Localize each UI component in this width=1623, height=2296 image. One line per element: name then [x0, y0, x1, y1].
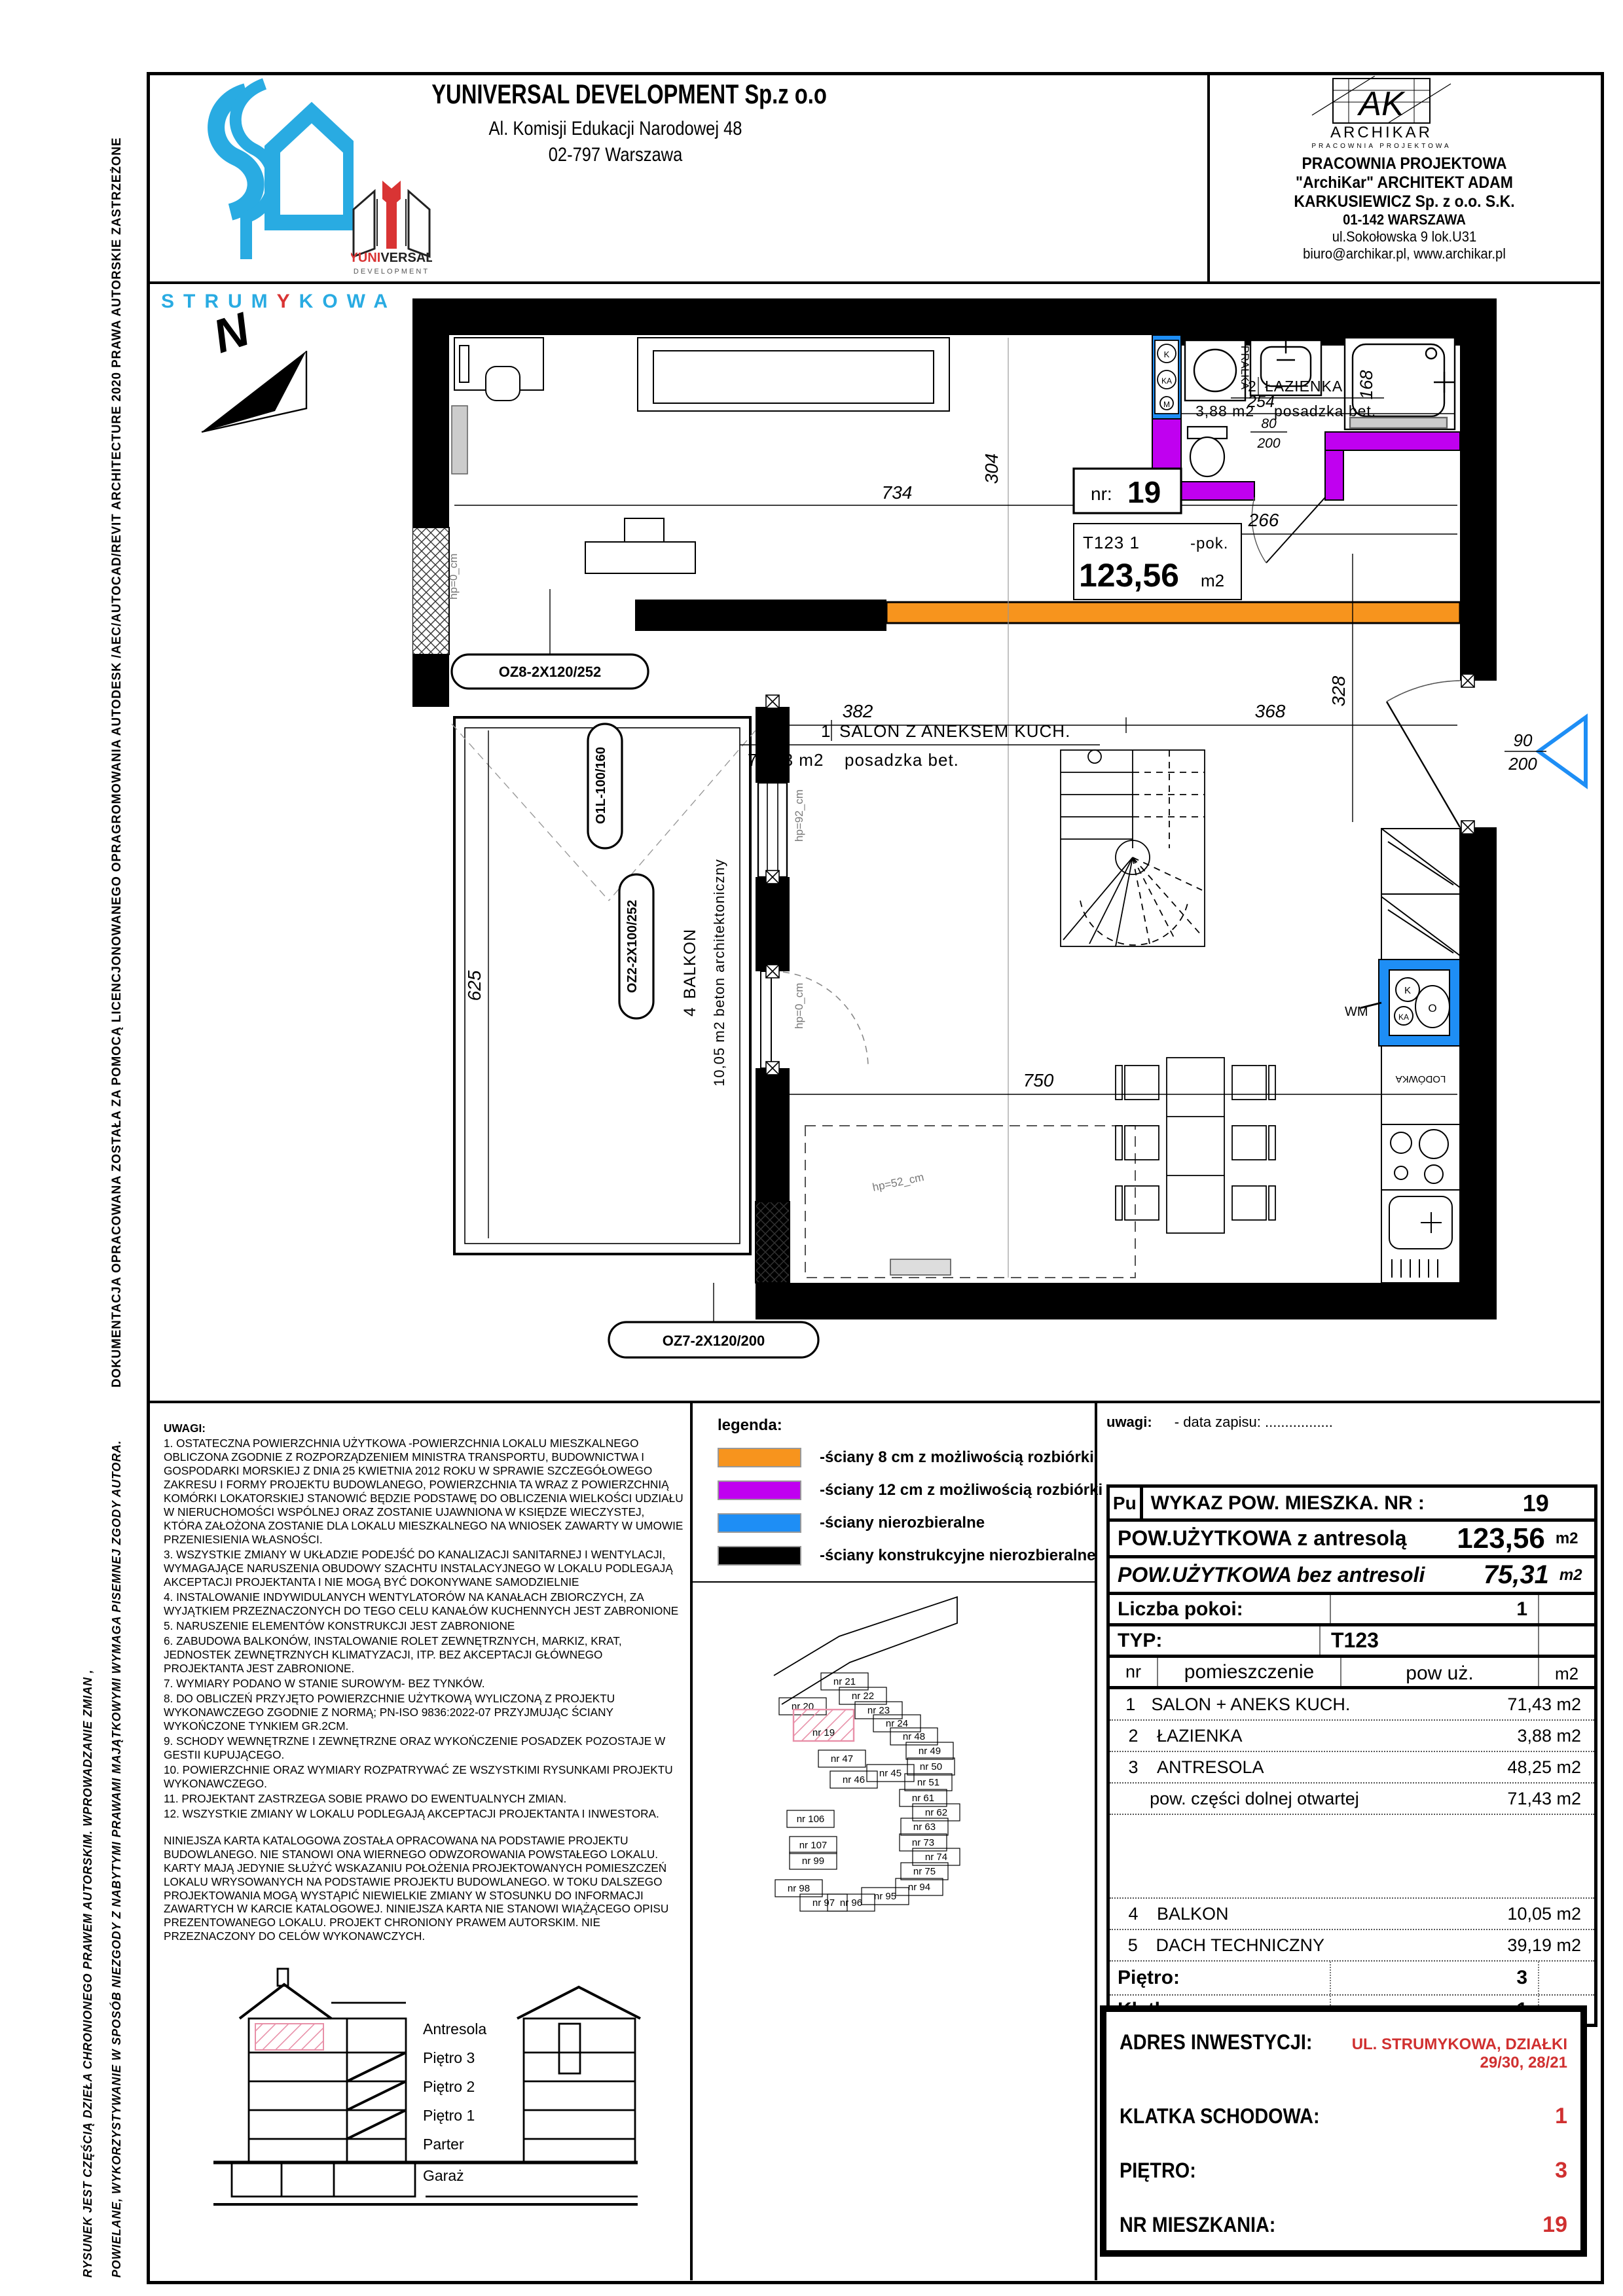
keyplan-unit-label: nr 73	[912, 1837, 934, 1848]
lodowka-label: LODÓWKA	[1396, 1073, 1446, 1085]
room-row: 2ŁAZIENKA3,88 m2	[1110, 1721, 1594, 1752]
legend-item: -ściany 8 cm z możliwością rozbiórki	[718, 1448, 1084, 1467]
window-label-oz8: OZ8-2X120/252	[499, 664, 602, 680]
balcony-no: 4	[681, 1007, 699, 1016]
room-rows: 1SALON + ANEKS KUCH.71,43 m22ŁAZIENKA3,8…	[1110, 1689, 1594, 1962]
shaft2-k: K	[1404, 985, 1411, 996]
cell-pu: Pu	[1110, 1488, 1143, 1518]
keyplan-unit-label: nr 19	[812, 1727, 835, 1738]
keyplan-unit: nr 94	[896, 1878, 943, 1895]
uwagi-note: 1. OSTATECZNA POWIERZCHNIA UŻYTKOWA -POW…	[164, 1437, 685, 1547]
svg-text:4BALKON: 4BALKON	[681, 929, 699, 1016]
room-row: pow. części dolnej otwartej71,43 m2	[1110, 1784, 1594, 1815]
room-area: 10,05 m2	[1319, 1904, 1594, 1924]
balcony-area: 10,05 m2 beton architektoniczny	[711, 859, 727, 1086]
section-highlight	[255, 2024, 323, 2050]
uwagi-note: 11. PROJEKTANT ZASTRZEGA SOBIE PRAWO DO …	[164, 1792, 685, 1806]
dim-750: 750	[1023, 1070, 1054, 1090]
room-nr: 5	[1110, 1935, 1156, 1956]
logo-y-stem	[386, 202, 397, 249]
legend-item: -ściany nierozbieralne	[718, 1513, 1084, 1533]
adres-value: UL. STRUMYKOWA, DZIAŁKI 29/30, 28/21	[1334, 2036, 1567, 2072]
room-area: 48,25 m2	[1319, 1757, 1594, 1778]
uwagi-block: UWAGI: 1. OSTATECZNA POWIERZCHNIA UŻYTKO…	[164, 1422, 685, 1945]
keyplan-unit-label: nr 63	[913, 1821, 936, 1833]
room-name: DACH TECHNICZNY	[1156, 1935, 1325, 1956]
dach-techniczny-outline	[805, 1126, 1135, 1278]
shaft1-k: K	[1164, 350, 1170, 359]
cell-pow2-unit: m2	[1559, 1566, 1594, 1585]
keyplan-unit-label: nr 61	[912, 1793, 934, 1804]
type-area: 123,56	[1079, 557, 1179, 594]
legend-title: legenda:	[718, 1416, 1084, 1435]
section-labels: AntresolaPiętro 3Piętro 2Piętro 1ParterG…	[423, 2020, 486, 2184]
section-floor-label: Antresola	[423, 2020, 486, 2037]
table-row-header: Pu WYKAZ POW. MIESZKA. NR : 19	[1110, 1488, 1594, 1522]
floor-plan: nr: 19 T123 1 -pok. 123,56 m2 1 SALON Z …	[412, 285, 1591, 1372]
room-nr: 4	[1110, 1904, 1157, 1924]
studio-line5: ul.Sokołowska 9 lok.U31	[1233, 228, 1576, 245]
adres-label: ADRES INWESTYCJI:	[1120, 2030, 1312, 2054]
type-pok: -pok.	[1190, 535, 1228, 552]
legend-item-label: -ściany 12 cm z możliwością rozbiórki	[820, 1481, 1103, 1499]
keyplan-unit-label: nr 48	[903, 1731, 925, 1742]
room-name: ŁAZIENKA	[1157, 1726, 1319, 1746]
section-floor-label: Piętro 1	[423, 2107, 475, 2124]
room-nr: 1	[1110, 1695, 1151, 1715]
keyplan-unit: nr 47	[818, 1750, 866, 1767]
keyplan-unit: nr 45	[867, 1765, 914, 1782]
archikar-logo-sub: PRACOWNIA PROJEKTOWA	[1311, 143, 1451, 150]
archikar-logo-name: ARCHIKAR	[1330, 124, 1432, 141]
dim-200b: 200	[1508, 754, 1537, 774]
uwagi-note: 7. WYMIARY PODANO W STANIE SUROWYM- BEZ …	[164, 1677, 685, 1691]
window-label-o1l: O1L-100/160	[594, 747, 608, 824]
keyplan-unit-label: nr 74	[925, 1852, 947, 1863]
strumykowa-logo	[196, 76, 354, 283]
room-nr: 2	[1110, 1726, 1157, 1746]
radiator	[452, 406, 467, 474]
legend-rows: -ściany 8 cm z możliwością rozbiórki-ści…	[718, 1448, 1084, 1566]
keyplan-unit-label: nr 62	[925, 1807, 947, 1818]
uwagi-note: 10. POWIERZCHNIE ORAZ WYMIARY ROZPATRYWA…	[164, 1763, 685, 1791]
sofa-large	[638, 338, 949, 411]
cell-pietro-label: Piętro:	[1110, 1967, 1330, 1989]
logo-text-development: DEVELOPMENT	[354, 268, 429, 276]
dim-625: 625	[464, 970, 484, 1001]
uwagi-note: 5. NARUSZENIE ELEMENTÓW KONSTRUKCJI JEST…	[164, 1619, 685, 1633]
legend: legenda: -ściany 8 cm z możliwością rozb…	[718, 1416, 1084, 1566]
keyplan-unit: nr 51	[905, 1774, 952, 1791]
logo-building-left	[354, 191, 374, 257]
room-name: BALKON	[1157, 1904, 1319, 1924]
cell-wykaz-value: 19	[1425, 1490, 1559, 1517]
balcony-label: 4BALKON 10,05 m2 beton architektoniczny	[681, 859, 727, 1086]
klatka-schodowa-value: 1	[1555, 2104, 1567, 2129]
legend-bottom-line	[690, 1581, 1095, 1583]
salon-no: 1	[821, 721, 831, 741]
salon-label: 1 SALON Z ANEKSEM KUCH. 71,43 m2 posadzk…	[740, 720, 1100, 770]
table-row-typ: TYP: T123	[1110, 1626, 1594, 1658]
hp-label-4: hp=52_cm	[871, 1171, 925, 1194]
keyplan-unit: nr 19	[793, 1710, 854, 1741]
developer-name: YUNIVERSAL DEVELOPMENT Sp.z o.o	[431, 79, 799, 110]
pietro-value: 3	[1555, 2158, 1567, 2183]
keyplan-unit: nr 95	[862, 1888, 909, 1905]
shaft1-ka: KA	[1161, 376, 1172, 386]
hp-label-1: hp=0_cm	[447, 554, 460, 600]
window-label-oz2: OZ2-2X100/252	[625, 900, 640, 993]
north-arrow: N	[183, 298, 334, 449]
dresser	[585, 518, 695, 573]
dim-254: 254	[1247, 393, 1275, 411]
room-name: pow. części dolnej otwartej	[1150, 1789, 1359, 1809]
window-o1l	[758, 783, 787, 877]
table-row-pietro: Piętro: 3	[1110, 1962, 1594, 1996]
hp-label-3: hp=0_cm	[793, 983, 805, 1029]
bath-area: 3,88 m2	[1195, 403, 1254, 420]
section-floor-label: Piętro 3	[423, 2049, 475, 2066]
cell-pietro-value: 3	[1331, 1967, 1538, 1989]
bottom-col-divider-2	[1095, 1401, 1097, 2280]
keyplan-unit-label: nr 22	[852, 1691, 874, 1702]
archikar-logo: AK ARCHIKAR PRACOWNIA PROJEKTOWA	[1309, 76, 1453, 152]
nr-mieszkania-value: 19	[1542, 2212, 1567, 2238]
wall-orange-8cm	[886, 602, 1460, 623]
logo-house	[272, 113, 351, 223]
keyplan-unit-label: nr 46	[843, 1774, 865, 1785]
dim-328: 328	[1328, 675, 1349, 706]
header-divider	[147, 281, 1600, 284]
dining-set	[1116, 1058, 1275, 1233]
cell-typ-label: TYP:	[1110, 1630, 1319, 1652]
room-area: 3,88 m2	[1319, 1726, 1594, 1746]
logo-text-yuni: YUNI	[351, 251, 380, 265]
cell-pow1-value: 123,56	[1407, 1522, 1556, 1555]
address-row-adres: ADRES INWESTYCJI: UL. STRUMYKOWA, DZIAŁK…	[1106, 2030, 1580, 2072]
key-plan: nr 21nr 22nr 23nr 24nr 48nr 49nr 20nr 19…	[766, 1594, 976, 1937]
room-row: 3ANTRESOLA48,25 m2	[1110, 1752, 1594, 1784]
table-row-pow-bez: POW.UŻYTKOWA bez antresoli 75,31 m2	[1110, 1558, 1594, 1595]
legend-color-chip	[718, 1513, 801, 1533]
studio-line4: 01-142 WARSZAWA	[1233, 211, 1576, 228]
dim-90: 90	[1514, 730, 1533, 750]
dim-368: 368	[1255, 701, 1286, 721]
uwagi-note: 6. ZABUDOWA BALKONÓW, INSTALOWANIE ROLET…	[164, 1634, 685, 1676]
shaft1-m: M	[1163, 400, 1170, 409]
uwagi-note: 9. SCHODY WEWNĘTRZNE I ZEWNĘTRZNE ORAZ W…	[164, 1734, 685, 1762]
developer-addr2: 02-797 Warszawa	[415, 144, 816, 166]
cell-typ-value: T123	[1321, 1628, 1538, 1653]
keyplan-unit-label: nr 95	[874, 1891, 896, 1902]
building-section: AntresolaPiętro 3Piętro 2Piętro 1ParterG…	[203, 1966, 648, 2274]
keyplan-unit-label: nr 45	[879, 1768, 902, 1779]
cell-pow1-label: POW.UŻYTKOWA z antresolą	[1110, 1526, 1407, 1551]
address-row-pietro: PIĘTRO: 3	[1106, 2158, 1580, 2183]
room-area: 39,19 m2	[1324, 1935, 1594, 1956]
developer-block: YUNIVERSAL DEVELOPMENT Sp.z o.o Al. Komi…	[380, 79, 851, 166]
uwagi-disclaimer: NINIEJSZA KARTA KATALOGOWA ZOSTAŁA OPRAC…	[164, 1834, 685, 1944]
keyplan-unit: nr 50	[907, 1758, 955, 1775]
keyplan-unit: nr 24	[873, 1715, 921, 1732]
dim-80: 80	[1261, 416, 1277, 431]
bath-floor: posadzka bet.	[1274, 403, 1376, 420]
yuniversal-logo: YUNIVERSAL DEVELOPMENT	[351, 173, 432, 278]
uwagi-note: 4. INSTALOWANIE INDYWIDULANYCH WENTYLATO…	[164, 1590, 685, 1618]
washing-machine	[1185, 340, 1245, 401]
keyplan-wing	[774, 1597, 957, 1704]
hp-labels: hp=0_cm hp=92_cm hp=0_cm hp=52_cm	[447, 554, 925, 1194]
keyplan-unit-label: nr 106	[797, 1814, 825, 1825]
north-label: N	[207, 302, 257, 363]
uwagi-note: 3. WSZYSTKIE ZMIANY W UKŁADZIE PODEJŚĆ D…	[164, 1548, 685, 1589]
entrance-door	[1387, 681, 1586, 827]
shaft2-ka: KA	[1398, 1013, 1409, 1022]
col-nr: nr	[1110, 1658, 1158, 1686]
room-row	[1110, 1815, 1594, 1899]
type-code: T123 1	[1083, 533, 1140, 552]
legend-color-chip	[718, 1546, 801, 1566]
room-name: ANTRESOLA	[1157, 1757, 1319, 1778]
bath-name: ŁAZIENKA	[1265, 378, 1343, 395]
uwagi-data-row: uwagi: - data zapisu: .................	[1106, 1414, 1333, 1431]
section-floor-label: Garaż	[423, 2167, 464, 2184]
unit-number-prefix: nr:	[1091, 484, 1112, 504]
table-row-liczba: Liczba pokoi: 1	[1110, 1595, 1594, 1626]
cell-liczba-value: 1	[1331, 1598, 1538, 1621]
room-row: 5DACH TECHNICZNY39,19 m2	[1110, 1930, 1594, 1962]
dim-304: 304	[981, 454, 1002, 484]
header-vdivider	[1207, 72, 1210, 281]
room-nr: 3	[1110, 1757, 1157, 1778]
dim-382: 382	[843, 701, 873, 721]
tv-bench	[890, 1259, 951, 1275]
dim-168: 168	[1357, 370, 1376, 399]
col-m2: m2	[1538, 1658, 1594, 1686]
unit-number-value: 19	[1127, 475, 1161, 509]
hp-label-2: hp=92_cm	[793, 789, 805, 842]
room-row: 4BALKON10,05 m2	[1110, 1899, 1594, 1930]
uwagi-title: UWAGI:	[164, 1422, 685, 1435]
desk	[454, 338, 543, 401]
data-zapisu: - data zapisu: .................	[1175, 1414, 1333, 1430]
cell-pow2-value: 75,31	[1425, 1560, 1559, 1590]
keyplan-units: nr 21nr 22nr 23nr 24nr 48nr 49nr 20nr 19…	[775, 1673, 960, 1911]
room-area: 71,43 m2	[1359, 1789, 1594, 1809]
keyplan-unit: nr 46	[830, 1771, 877, 1788]
uwagi-label: uwagi:	[1106, 1414, 1152, 1430]
studio-line2: "ArchiKar" ARCHITEKT ADAM	[1233, 173, 1576, 192]
legend-item-label: -ściany konstrukcyjne nierozbieralne	[820, 1547, 1096, 1565]
type-area-unit: m2	[1201, 571, 1224, 590]
keyplan-unit: nr 99	[790, 1852, 837, 1869]
cell-liczba-label: Liczba pokoi:	[1110, 1598, 1330, 1621]
wm-label: WM	[1345, 1005, 1368, 1019]
stairs	[1061, 750, 1205, 946]
balcony-name: BALKON	[681, 929, 699, 999]
legend-item-label: -ściany 8 cm z możliwością rozbiórki	[820, 1448, 1094, 1467]
keyplan-unit: nr 107	[790, 1837, 837, 1854]
cell-pow1-unit: m2	[1556, 1530, 1594, 1548]
svg-text:YUNIVERSAL: YUNIVERSAL	[351, 251, 432, 265]
keyplan-unit-label: nr 107	[799, 1840, 828, 1851]
dim-200a: 200	[1256, 436, 1280, 451]
wall-insulation	[412, 528, 449, 655]
pietro-label: PIĘTRO:	[1120, 2159, 1196, 2183]
type-box: T123 1 -pok. 123,56 m2	[1074, 524, 1241, 600]
balcony-door	[761, 971, 868, 1068]
room-name: SALON + ANEKS KUCH.	[1151, 1695, 1350, 1715]
developer-addr1: Al. Komisji Edukacji Narodowej 48	[415, 118, 816, 140]
legend-item: -ściany konstrukcyjne nierozbieralne	[718, 1546, 1084, 1566]
keyplan-unit-label: nr 47	[831, 1753, 853, 1765]
keyplan-unit-label: nr 50	[920, 1761, 942, 1772]
nr-mieszkania-label: NR MIESZKANIA:	[1120, 2213, 1275, 2237]
keyplan-unit-label: nr 21	[833, 1676, 856, 1687]
studio-line6: biuro@archikar.pl, www.archikar.pl	[1233, 245, 1576, 262]
dim-266: 266	[1248, 510, 1279, 530]
col-pow: pow uż.	[1340, 1658, 1538, 1686]
address-row-nr: NR MIESZKANIA: 19	[1106, 2212, 1580, 2238]
room-row: 1SALON + ANEKS KUCH.71,43 m2	[1110, 1689, 1594, 1721]
bathroom-door	[1252, 497, 1325, 563]
section-floor-label: Piętro 2	[423, 2078, 475, 2095]
studio-block: PRACOWNIA PROJEKTOWA "ArchiKar" ARCHITEK…	[1218, 154, 1591, 262]
archikar-monogram: AK	[1357, 85, 1406, 123]
area-table: Pu WYKAZ POW. MIESZKA. NR : 19 POW.UŻYTK…	[1106, 1484, 1597, 2027]
unit-number-box: nr: 19	[1074, 469, 1181, 513]
kitchen-run	[1381, 829, 1460, 1283]
salon-floor: posadzka bet.	[845, 750, 959, 770]
logo-building-right	[409, 191, 429, 257]
legend-color-chip	[718, 1448, 801, 1467]
keyplan-unit: nr 106	[787, 1810, 834, 1827]
keyplan-unit-label: nr 97	[812, 1897, 835, 1909]
col-name: pomieszczenie	[1158, 1661, 1340, 1683]
room-area: 71,43 m2	[1350, 1695, 1594, 1715]
window-label-oz7: OZ7-2X120/200	[663, 1333, 765, 1349]
logo-text-versal: VERSAL	[380, 251, 432, 265]
keyplan-unit-label: nr 99	[802, 1856, 824, 1867]
keyplan-unit-label: nr 51	[917, 1777, 939, 1788]
legend-color-chip	[718, 1480, 801, 1500]
keyplan-unit-label: nr 98	[788, 1883, 810, 1894]
shaft2-o: O	[1428, 1002, 1436, 1014]
salon-area: 71,43 m2	[748, 750, 824, 770]
section-floor-label: Parter	[423, 2136, 464, 2153]
uwagi-note: 12. WSZYSTKIE ZMIANY W LOKALU PODLEGAJĄ …	[164, 1807, 685, 1821]
keyplan-unit-label: nr 49	[919, 1746, 941, 1757]
uwagi-note: 8. DO OBLICZEŃ PRZYJĘTO POWIERZCHNIE UŻY…	[164, 1692, 685, 1733]
keyplan-unit-label: nr 96	[840, 1897, 862, 1909]
address-row-klatka: KLATKA SCHODOWA: 1	[1106, 2104, 1580, 2129]
keyplan-unit-label: nr 75	[913, 1866, 936, 1877]
side-note-top: DOKUMENTACJA OPRACOWANA ZOSTAŁA ZA POMOC…	[110, 79, 124, 1388]
bottom-col-divider-1	[690, 1401, 693, 2280]
salon-name: SALON Z ANEKSEM KUCH.	[839, 721, 1070, 741]
dim-734: 734	[882, 482, 913, 503]
side-note-bottom-2: POWIELANE, WYKORZYSTYWANIE W SPOSÓB NIEZ…	[110, 1244, 124, 2278]
cell-pow2-label: POW.UŻYTKOWA bez antresoli	[1110, 1563, 1425, 1587]
table-row-pow-antresola: POW.UŻYTKOWA z antresolą 123,56 m2	[1110, 1522, 1594, 1558]
table-row-cols: nr pomieszczenie pow uż. m2	[1110, 1658, 1594, 1689]
pralka-label: PRALKA	[1239, 346, 1251, 390]
catalog-sheet: DOKUMENTACJA OPRACOWANA ZOSTAŁA ZA POMOC…	[0, 0, 1623, 2296]
plan-bottom-divider	[147, 1401, 1600, 1403]
legend-item-label: -ściany nierozbieralne	[820, 1514, 985, 1532]
cell-wykaz-label: WYKAZ POW. MIESZKA. NR :	[1143, 1492, 1425, 1515]
studio-line1: PRACOWNIA PROJEKTOWA	[1233, 154, 1576, 173]
toilet	[1188, 427, 1227, 476]
keyplan-unit-label: nr 94	[908, 1882, 930, 1893]
uwagi-notes: 1. OSTATECZNA POWIERZCHNIA UŻYTKOWA -POW…	[164, 1437, 685, 1821]
side-note-bottom-1: RYSUNEK JEST CZĘŚCIĄ DZIEŁA CHRONIONEGO …	[81, 1244, 95, 2278]
klatka-schodowa-label: KLATKA SCHODOWA:	[1120, 2104, 1320, 2128]
address-box: ADRES INWESTYCJI: UL. STRUMYKOWA, DZIAŁK…	[1100, 2005, 1587, 2257]
studio-line3: KARKUSIEWICZ Sp. z o.o. S.K.	[1233, 192, 1576, 211]
wall-insulation-2	[756, 1202, 790, 1283]
legend-item: -ściany 12 cm z możliwością rozbiórki	[718, 1480, 1084, 1500]
